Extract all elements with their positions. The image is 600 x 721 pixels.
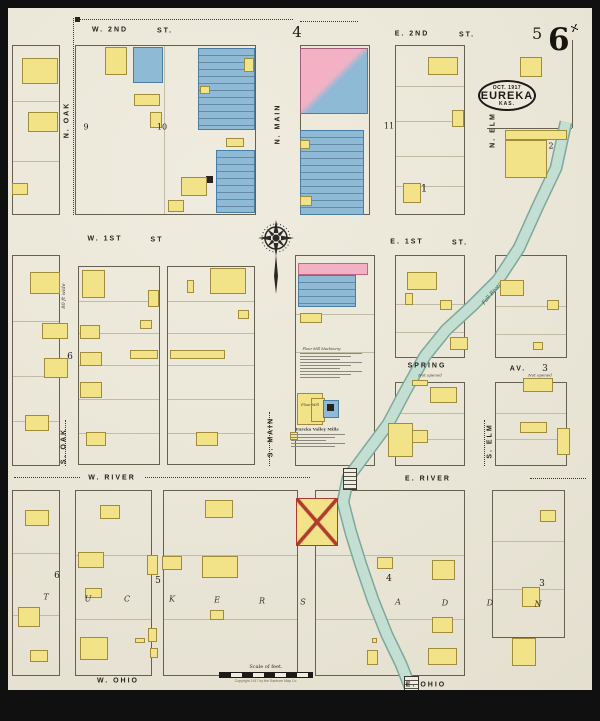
labels-layer: OCT. 1917 EUREKA KAS. 5 6 Scale of feet.… bbox=[0, 0, 600, 721]
scale-label: Scale of feet. bbox=[218, 664, 314, 670]
block-number: 10 bbox=[157, 123, 167, 132]
street-label: W. 1ST bbox=[88, 236, 123, 243]
addition-letter: D bbox=[442, 599, 448, 608]
street-label: W. RIVER bbox=[88, 475, 136, 482]
sheet-number-ornament-icon bbox=[571, 24, 578, 32]
publisher-stamp: OCT. 1917 EUREKA KAS. bbox=[478, 80, 536, 111]
frame-right bbox=[592, 0, 600, 721]
street-label: W. 2ND bbox=[92, 27, 128, 34]
street-label: E. 1ST bbox=[390, 239, 423, 246]
addition-letter: D bbox=[487, 599, 493, 608]
block-number: 11 bbox=[384, 122, 394, 131]
street-label: N. MAIN bbox=[275, 104, 282, 145]
addition-letter: R bbox=[259, 597, 265, 606]
street-label: E. RIVER bbox=[405, 476, 451, 483]
copyright-line: Copyright 1917 by the Sanborn Map Co. bbox=[218, 679, 314, 683]
map-annotation: Flour Mill bbox=[301, 403, 319, 407]
frame-left bbox=[0, 0, 8, 721]
block-number: 5 bbox=[155, 576, 161, 586]
block-number: 9 bbox=[83, 123, 88, 132]
addition-letter: A bbox=[395, 598, 401, 607]
block-number: 4 bbox=[386, 574, 392, 584]
map-annotation: Fall River bbox=[481, 282, 503, 306]
scale-bar bbox=[219, 672, 313, 678]
street-label: E. OHIO bbox=[406, 682, 446, 689]
map-annotation: Not opened bbox=[418, 373, 442, 378]
addition-letter: C bbox=[124, 595, 130, 604]
map-annotation: Not opened bbox=[528, 373, 552, 378]
street-label: N. OAK bbox=[64, 102, 71, 139]
addition-letter: K bbox=[169, 595, 175, 604]
frame-top bbox=[0, 0, 600, 8]
block-number: 6 bbox=[67, 352, 73, 362]
addition-letter: T bbox=[43, 593, 48, 602]
addition-letter: E bbox=[214, 596, 220, 605]
street-label: ST bbox=[151, 237, 164, 244]
street-label: S. MAIN bbox=[268, 417, 275, 457]
sheet-number: 6 bbox=[548, 22, 570, 58]
block-number: 4 bbox=[292, 23, 302, 41]
scale-of-feet: Scale of feet. Copyright 1917 by the San… bbox=[218, 664, 314, 683]
block-number: 2 bbox=[548, 142, 553, 151]
block-number: 1 bbox=[421, 184, 427, 195]
map-annotation: Eureka Valley Mills bbox=[295, 427, 338, 432]
street-label: S. ELM bbox=[487, 423, 494, 458]
street-label: ST. bbox=[452, 240, 468, 247]
street-label: N. ELM bbox=[490, 112, 497, 148]
map-annotation: 80 ft wide bbox=[61, 283, 67, 308]
addition-letter: N bbox=[535, 600, 542, 609]
addition-letter: S bbox=[300, 598, 305, 607]
adjacent-sheet-number: 5 bbox=[532, 24, 542, 43]
street-label: AV. bbox=[510, 366, 527, 373]
addition-letter: U bbox=[85, 595, 92, 604]
block-number: 6 bbox=[54, 571, 60, 581]
block-number: 3 bbox=[539, 579, 545, 589]
frame-bottom bbox=[0, 690, 600, 721]
sheet-number-text: 6 bbox=[548, 22, 570, 58]
street-label: W. OHIO bbox=[97, 678, 139, 685]
street-label: E. 2ND bbox=[395, 31, 430, 38]
street-label: S. OAK bbox=[61, 428, 68, 464]
stamp-city: EUREKA bbox=[480, 91, 534, 101]
street-label: SPRING bbox=[408, 363, 447, 370]
sanborn-map-sheet: OCT. 1917 EUREKA KAS. 5 6 Scale of feet.… bbox=[0, 0, 600, 721]
street-label: ST. bbox=[157, 28, 173, 35]
street-label: ST. bbox=[459, 32, 475, 39]
map-annotation: Flour Mill Machinery: bbox=[303, 347, 342, 351]
